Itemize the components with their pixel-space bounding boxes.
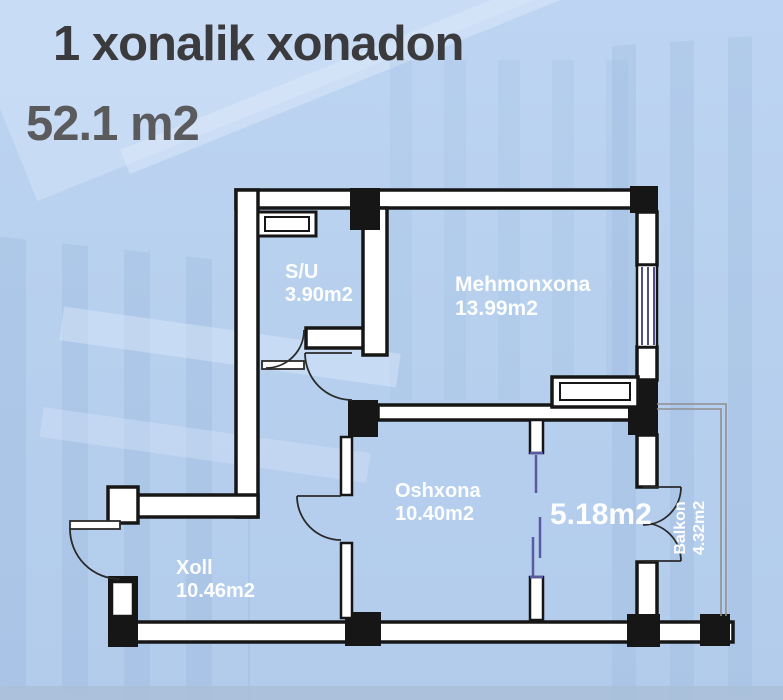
label-oshxona: Oshxona 10.40m2 — [395, 480, 481, 526]
label-oshxona-area: 10.40m2 — [395, 503, 474, 525]
wall-su-bottom — [306, 328, 368, 348]
column-bottom-2 — [627, 614, 660, 647]
wall-right-2 — [637, 347, 657, 380]
wall-right-3 — [637, 435, 657, 487]
wall-mehmonxona-left — [363, 208, 387, 355]
label-balkon: Balkon 4.32m2 — [672, 487, 710, 569]
label-su: S/U 3.90m2 — [285, 261, 353, 307]
label-xoll-name: Xoll — [176, 557, 213, 579]
sliding-partition-top-stub — [530, 420, 543, 453]
partition-oshxona-left-upper — [341, 437, 352, 495]
label-su-area: 3.90m2 — [285, 284, 353, 306]
wall-left-lower-inset — [112, 582, 133, 616]
floor-plan-page: 1 xonalik xonadon 52.1 m2 S/U 3.90m2 Meh… — [0, 0, 783, 700]
entrance-door-leaf — [70, 521, 120, 529]
wall-right-1 — [637, 212, 657, 265]
column-top-right-corner — [630, 186, 658, 213]
column-oshxona-topleft — [348, 400, 378, 437]
column-bottom-right-corner — [700, 614, 730, 646]
label-balkon-name: Balkon — [672, 501, 689, 554]
mehmonxona-door-arc — [305, 353, 352, 400]
label-room5-area: 5.18m2 — [550, 498, 652, 533]
sliding-door-panels — [530, 453, 543, 577]
doors — [70, 330, 681, 579]
niche-su-box — [258, 212, 316, 236]
column-top-middle — [350, 188, 380, 230]
niche-mehmonxona-box — [552, 377, 638, 407]
partition-oshxona-left — [341, 437, 352, 618]
page-title: 1 xonalik xonadon — [53, 16, 463, 72]
label-xoll: Xoll 10.46m2 — [176, 557, 255, 603]
wall-left-upper — [236, 190, 258, 517]
label-xoll-area: 10.46m2 — [176, 580, 255, 602]
label-oshxona-name: Oshxona — [395, 480, 481, 502]
sliding-partition-bottom-stub — [530, 577, 543, 620]
entrance-door-arc — [70, 529, 120, 579]
partition-oshxona-left-lower — [341, 543, 352, 618]
window-mehmonxona — [637, 265, 657, 347]
label-mehmonxona-area: 13.99m2 — [455, 297, 538, 320]
wall-top — [236, 190, 632, 208]
total-area: 52.1 m2 — [26, 96, 199, 152]
wall-entry-pillar — [108, 487, 138, 523]
label-balkon-area: 4.32m2 — [691, 501, 708, 555]
label-mehmonxona-name: Mehmonxona — [455, 273, 590, 296]
label-su-name: S/U — [285, 261, 318, 283]
oshxona-door-arc — [297, 496, 341, 540]
label-mehmonxona: Mehmonxona 13.99m2 — [455, 273, 590, 322]
sliding-door-partition — [530, 420, 543, 620]
wall-right-4 — [637, 562, 657, 618]
